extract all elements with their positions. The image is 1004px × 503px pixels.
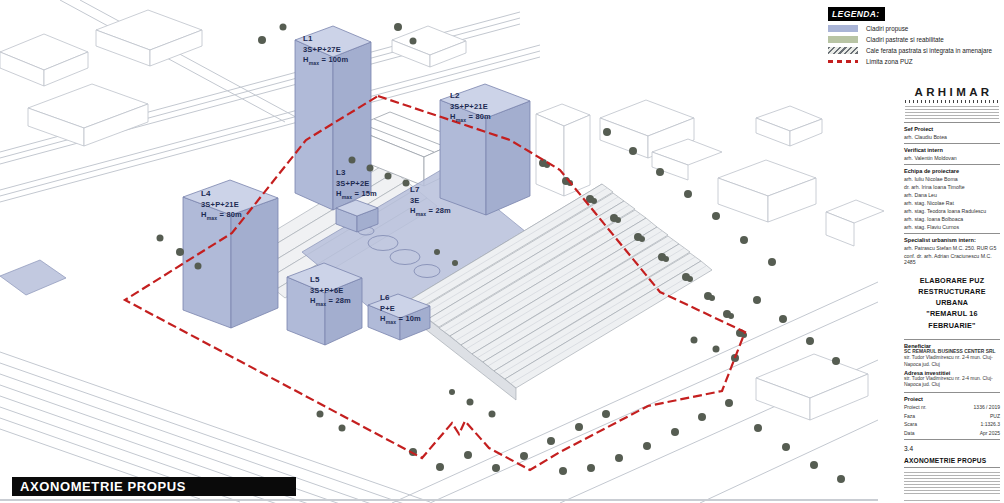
building-id: L3 [336,167,377,179]
building-hmax: Hmax = 80m [201,210,242,222]
legend-swatch-preserved [828,36,858,43]
person-name: conf. dr. arh. Adrian Craciunescu M.C. 2… [904,253,1000,265]
legend-swatch-puz-limit [828,60,858,63]
arhimar-logo: ARHIMAR [904,86,1000,98]
building-regime: 3E [410,196,451,207]
site-address: str. Tudor Vladimirescu nr. 2-4 mun. Clu… [904,376,1000,389]
fine-print-block [904,472,1000,496]
building-regime: P+E [380,304,421,315]
project-row: Scara 1:1326.3 [904,421,1000,427]
axonometric-drawing [0,0,1004,503]
person-name: arh. stag. Teodora Ioana Radulescu [904,208,1000,214]
section-heading: Proiect [904,396,1000,402]
building-label-l7: L7 3E Hmax = 28m [410,184,451,218]
building-hmax: Hmax = 10m [380,314,421,326]
legend-item: Cladiri propuse [828,25,1004,32]
building-label-l3: L3 3S+P+2E Hmax = 15m [336,167,377,201]
project-row: Data Apr 2025 [904,430,1000,436]
building-label-l1: L1 3S+P+27E Hmax = 100m [303,33,348,67]
divider [904,122,1000,123]
divider [904,392,1000,393]
building-id: L1 [303,33,348,45]
building-id: L4 [201,188,242,200]
legend-item: Limita zona PUZ [828,58,1004,65]
person-name: arh. Iuliu Nicolae Boma [904,176,1000,182]
divider [904,467,1000,468]
divider [904,339,1000,340]
person-name: arh. Valentin Moldovan [904,155,1000,161]
project-title: ELABORARE PUZ RESTRUCTURARE URBANA "REMA… [904,275,1000,331]
building-id: L5 [310,274,351,286]
legend-title: LEGENDA: [828,7,885,21]
person-name: arh. Patrascu Stefan M.C. 250. RUR G5 [904,245,1000,251]
logo-tagline [905,100,999,103]
legend-item: Cladiri pastrate si reabilitate [828,36,1004,43]
bottom-rule [0,499,878,501]
section-heading: Echipa de proiectare [904,168,1000,174]
person-name: arh. stag. Ioana Bolboaca [904,216,1000,222]
building-regime: 3S+P+21E [450,102,491,113]
building-id: L6 [380,292,421,304]
building-label-l5: L5 3S+P+6E Hmax = 28m [310,274,351,308]
blue-strip-west [0,260,66,295]
building-hmax: Hmax = 15m [336,189,377,201]
building-hmax: Hmax = 80m [450,112,491,124]
sheet-title-text: AXONOMETRIE PROPUS [20,479,186,494]
person-name: arh. stag. Flaviu Curnos [904,224,1000,230]
divider [904,439,1000,440]
building-hmax: Hmax = 100m [303,55,348,67]
building-label-l2: L2 3S+P+21E Hmax = 80m [450,90,491,124]
building-hmax: Hmax = 28m [410,206,451,218]
building-regime: 3S+P+2E [336,179,377,190]
section-heading: Specialist urbanism intern: [904,237,1000,243]
sheet-title-bar: AXONOMETRIE PROPUS [12,477,296,496]
person-name: dr. arh. Irina Ioana Timofte [904,184,1000,190]
legend-swatch-proposed [828,25,858,32]
building-regime: 3S+P+27E [303,45,348,56]
beneficiary-company: SC REMARUL BUSINESS CENTER SRL [904,349,1000,356]
building-regime: 3S+P+6E [310,286,351,297]
firm-address-lines [905,106,999,119]
sheet-name: AXONOMETRIE PROPUS [904,457,1000,464]
project-row: Faza PUZ [904,413,1000,419]
person-name: arh. Dana Leu [904,192,1000,198]
beneficiary-address: str. Tudor Vladimirescu nr. 2-4 mun. Clu… [904,355,1000,368]
sheet-number: 3.4 [904,445,1000,452]
divider [904,164,1000,165]
project-row: Proiect nr. 1336 / 2019 [904,404,1000,410]
plan-sheet: L1 3S+P+27E Hmax = 100m L2 3S+P+21E Hmax… [0,0,1004,503]
building-id: L2 [450,90,491,102]
building-id: L7 [410,184,451,196]
section-heading: Verificat intern [904,147,1000,153]
legend-swatch-railway-hatch [828,47,858,54]
section-heading: Sef Proiect [904,126,1000,132]
divider [904,233,1000,234]
building-label-l6: L6 P+E Hmax = 10m [380,292,421,326]
building-label-l4: L4 3S+P+21E Hmax = 80m [201,188,242,222]
title-block-panel: ARHIMAR Sef Proiect arh. Claudiu Botea V… [900,84,1004,503]
legend: LEGENDA: Cladiri propuse Cladiri pastrat… [828,3,1004,65]
building-regime: 3S+P+21E [201,200,242,211]
building-hmax: Hmax = 28m [310,296,351,308]
person-name: arh. Claudiu Botea [904,134,1000,140]
legend-item: Cale ferata pastrata si integrata in ame… [828,47,1004,54]
person-name: arh. stag. Nicolae Rat [904,200,1000,206]
divider [904,143,1000,144]
